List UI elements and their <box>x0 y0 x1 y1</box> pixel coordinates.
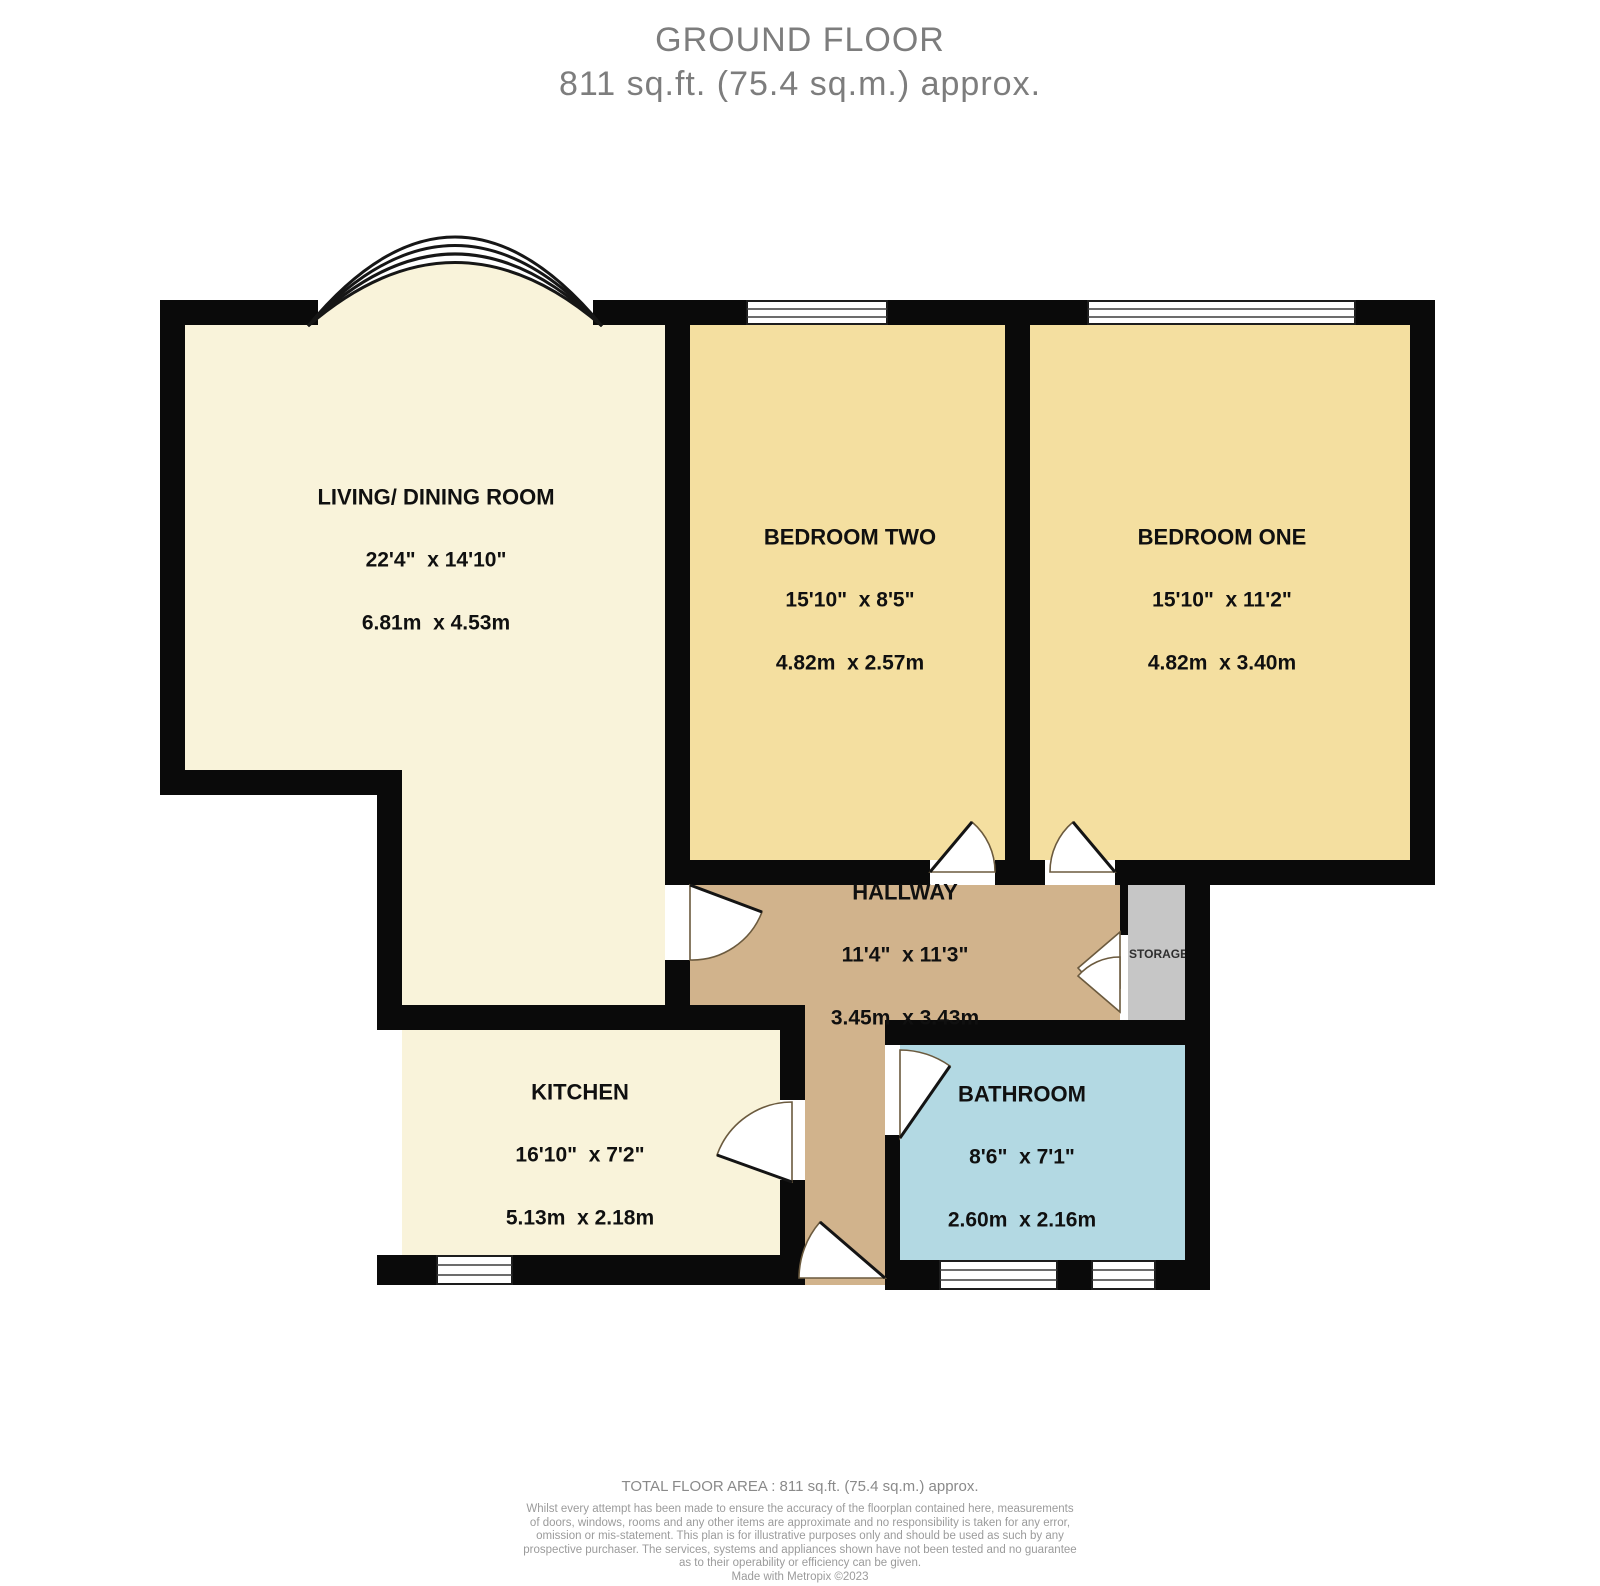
total-floor-area: TOTAL FLOOR AREA : 811 sq.ft. (75.4 sq.m… <box>0 1478 1600 1495</box>
room-label-bedroom-one: BEDROOM ONE 15'10" x 11'2" 4.82m x 3.40m <box>1138 488 1307 713</box>
room-dims-metric: 6.81m x 4.53m <box>317 610 554 637</box>
window-symbol <box>437 1256 512 1284</box>
bay-window <box>310 237 600 326</box>
room-dims-imperial: 15'10" x 11'2" <box>1138 587 1307 614</box>
room-dims-imperial: 16'10" x 7'2" <box>506 1142 654 1169</box>
disclaimer-line: omission or mis-statement. This plan is … <box>0 1530 1600 1544</box>
room-name: BEDROOM TWO <box>764 524 936 551</box>
room-dims-imperial: 11'4" x 11'3" <box>831 942 979 969</box>
floorplan-page: GROUND FLOOR 811 sq.ft. (75.4 sq.m.) app… <box>0 0 1600 1586</box>
window-symbol <box>1088 301 1355 324</box>
room-name: BATHROOM <box>948 1081 1096 1108</box>
room-name: LIVING/ DINING ROOM <box>317 484 554 511</box>
room-label-bathroom: BATHROOM 8'6" x 7'1" 2.60m x 2.16m <box>948 1045 1096 1270</box>
room-dims-metric: 4.82m x 2.57m <box>764 650 936 677</box>
window-symbol <box>1092 1261 1155 1289</box>
metropix-credit: Made with Metropix ©2023 <box>0 1571 1600 1585</box>
room-name: HALLWAY <box>831 879 979 906</box>
disclaimer-line: prospective purchaser. The services, sys… <box>0 1544 1600 1558</box>
room-dims-metric: 2.60m x 2.16m <box>948 1207 1096 1234</box>
room-label-living: LIVING/ DINING ROOM 22'4" x 14'10" 6.81m… <box>317 448 554 673</box>
disclaimer-line: Whilst every attempt has been made to en… <box>0 1503 1600 1517</box>
room-label-hallway: HALLWAY 11'4" x 11'3" 3.45m x 3.43m <box>831 843 979 1068</box>
room-label-bedroom-two: BEDROOM TWO 15'10" x 8'5" 4.82m x 2.57m <box>764 488 936 713</box>
room-dims-metric: 5.13m x 2.18m <box>506 1205 654 1232</box>
floorplan-drawing <box>0 0 1600 1586</box>
room-label-kitchen: KITCHEN 16'10" x 7'2" 5.13m x 2.18m <box>506 1043 654 1268</box>
window-symbol <box>747 301 887 324</box>
room-dims-imperial: 22'4" x 14'10" <box>317 547 554 574</box>
footer: TOTAL FLOOR AREA : 811 sq.ft. (75.4 sq.m… <box>0 1478 1600 1584</box>
room-dims-metric: 4.82m x 3.40m <box>1138 650 1307 677</box>
room-dims-imperial: 15'10" x 8'5" <box>764 587 936 614</box>
disclaimer-line: as to their operability or efficiency ca… <box>0 1557 1600 1571</box>
room-dims-metric: 3.45m x 3.43m <box>831 1005 979 1032</box>
room-label-storage: STORAGE <box>1129 947 1185 961</box>
room-name: BEDROOM ONE <box>1138 524 1307 551</box>
room-dims-imperial: 8'6" x 7'1" <box>948 1144 1096 1171</box>
disclaimer-line: of doors, windows, rooms and any other i… <box>0 1517 1600 1531</box>
room-name: KITCHEN <box>506 1079 654 1106</box>
